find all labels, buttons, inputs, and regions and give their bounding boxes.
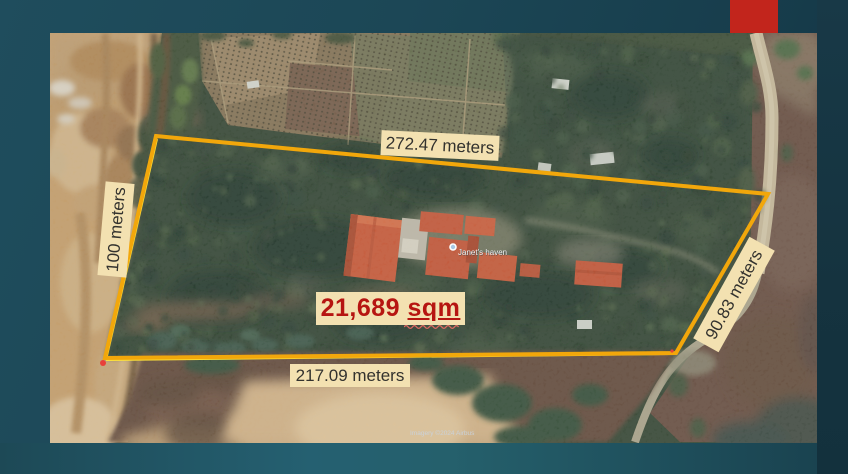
svg-text:Janet's haven: Janet's haven [458, 248, 507, 257]
svg-text:Imagery ©2024 Airbus: Imagery ©2024 Airbus [410, 429, 475, 437]
